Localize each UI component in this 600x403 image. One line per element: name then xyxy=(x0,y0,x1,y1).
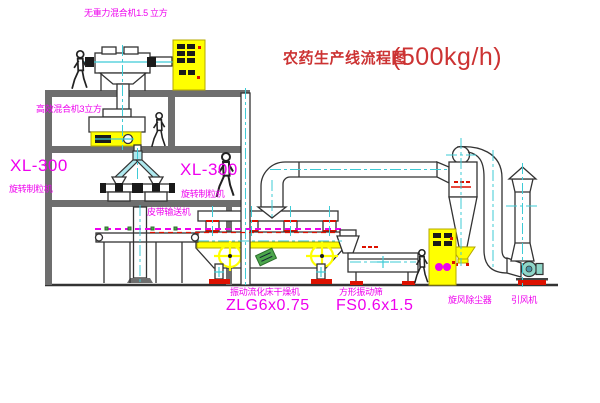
label-granulator-right-name: 旋转制粒机 xyxy=(181,190,225,199)
diagram-title: 农药生产线流程图 xyxy=(283,51,407,66)
pesticide-production-flow-diagram: 无重力混合机1.5 立方 高效混合机3立方 XL-300 旋转制粒机 XL-30… xyxy=(0,0,600,403)
label-granulator-left-model: XL-300 xyxy=(10,157,68,174)
label-high-eff-mixer: 高效混合机3立方 xyxy=(36,105,102,114)
gravity-free-mixer xyxy=(83,47,176,110)
worker-top-floor xyxy=(72,51,87,89)
exhaust-duct xyxy=(258,162,449,218)
fluid-bed-dryer xyxy=(196,211,344,284)
control-cabinet-top xyxy=(173,40,205,90)
granulator-right xyxy=(137,177,175,201)
label-dryer-name: 振动流化床干燥机 xyxy=(230,288,300,297)
vibrating-sieve xyxy=(337,230,418,285)
label-granulator-right-model: XL-300 xyxy=(180,161,238,178)
label-gravity-mixer: 无重力混合机1.5 立方 xyxy=(84,9,167,18)
control-cabinet-right xyxy=(429,229,456,285)
diagram-title-capacity: (500kg/h) xyxy=(392,45,502,70)
label-belt-conveyor: 皮带输送机 xyxy=(147,208,191,217)
label-granulator-left-name: 旋转制粒机 xyxy=(9,185,53,194)
label-sieve-model: FS0.6x1.5 xyxy=(336,298,413,314)
granulator-left xyxy=(100,177,138,201)
label-cyclone: 旋风除尘器 xyxy=(448,296,492,305)
label-fan: 引风机 xyxy=(511,296,537,305)
induced-draft-fan xyxy=(507,258,548,285)
label-sieve-name: 方形振动筛 xyxy=(339,288,383,297)
label-dryer-model: ZLG6x0.75 xyxy=(226,298,310,314)
worker-second-floor xyxy=(152,113,165,147)
